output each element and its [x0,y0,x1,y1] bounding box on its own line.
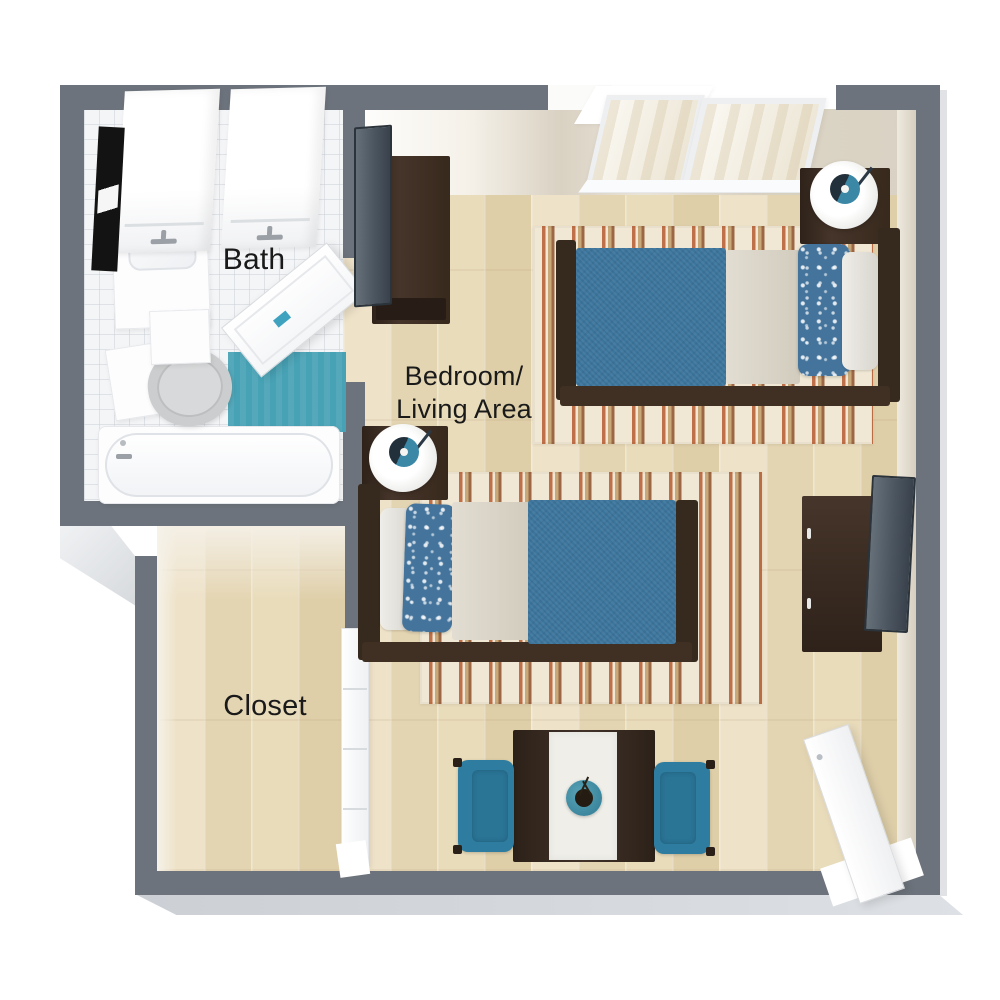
bed1-blanket [576,248,726,386]
lamp-shade-top [830,174,860,204]
closet-top-wall-face [157,526,345,600]
bed2-mattress [380,500,676,644]
floor-plan: Bath Bedroom/ Living Area Closet [0,0,1000,1000]
wall-bottom [135,871,940,895]
bed1-white-pillow [842,252,878,370]
bed1-headboard [878,228,900,402]
wall-bath-bottom [60,501,367,526]
closet-left-wall-face [157,526,177,871]
door-handle-icon [816,753,824,761]
bath-cabinet-left [115,89,220,253]
bathtub [98,426,340,504]
bifold-seam [343,748,367,750]
wall-right [916,85,940,895]
bathtub-basin [105,433,333,497]
drawer-handle [807,528,811,539]
bedroom-living-label: Bedroom/ Living Area [354,360,574,426]
tv-top-left [354,125,392,308]
bifold-seam [343,808,367,810]
tub-knob-icon [120,440,126,446]
bath-label: Bath [194,243,314,277]
lamp-shade-top [389,437,419,467]
closet-bifold-doors [341,628,369,868]
bed2-floral-pillow [402,503,456,633]
wall-left-bath [60,85,84,525]
bed2-footboard [676,500,698,662]
bath-cabinet-right [221,87,326,249]
cabinet-shelf-line [230,218,310,223]
armchair-right [654,762,710,854]
bath-mat [228,352,346,432]
cabinet-shelf-line [124,222,204,227]
closet-door-frame-notch [336,840,370,878]
vanity-side-cabinet [149,309,211,365]
cabinet-faucet-icon [150,239,176,245]
wall-left-closet [135,556,157,871]
bedroom-living-label-line1: Bedroom/ [354,360,574,393]
armchair-left [458,760,514,852]
bedroom-living-label-line2: Living Area [354,393,574,426]
bed2-blanket [528,500,676,644]
bed1-mattress [576,246,878,388]
bed1-sheet [726,250,800,384]
drawer-handle [807,598,811,609]
bed2-headboard [358,484,380,660]
bed1-rail [560,386,890,406]
plant-pot [566,780,602,816]
mirror-reflection [94,130,121,269]
armchair-seat [660,772,696,844]
lamp-bed2 [369,424,437,492]
bed2-rail [362,642,692,662]
cabinet-faucet-icon [256,235,282,241]
armchair-seat [472,770,508,842]
bed2-sheet [452,502,530,640]
bifold-seam [343,688,367,690]
tv-right [864,475,916,633]
wall-bevel-right [939,90,947,896]
closet-label: Closet [200,690,330,723]
tub-faucet-icon [116,454,132,459]
lamp-bed1 [810,161,878,229]
